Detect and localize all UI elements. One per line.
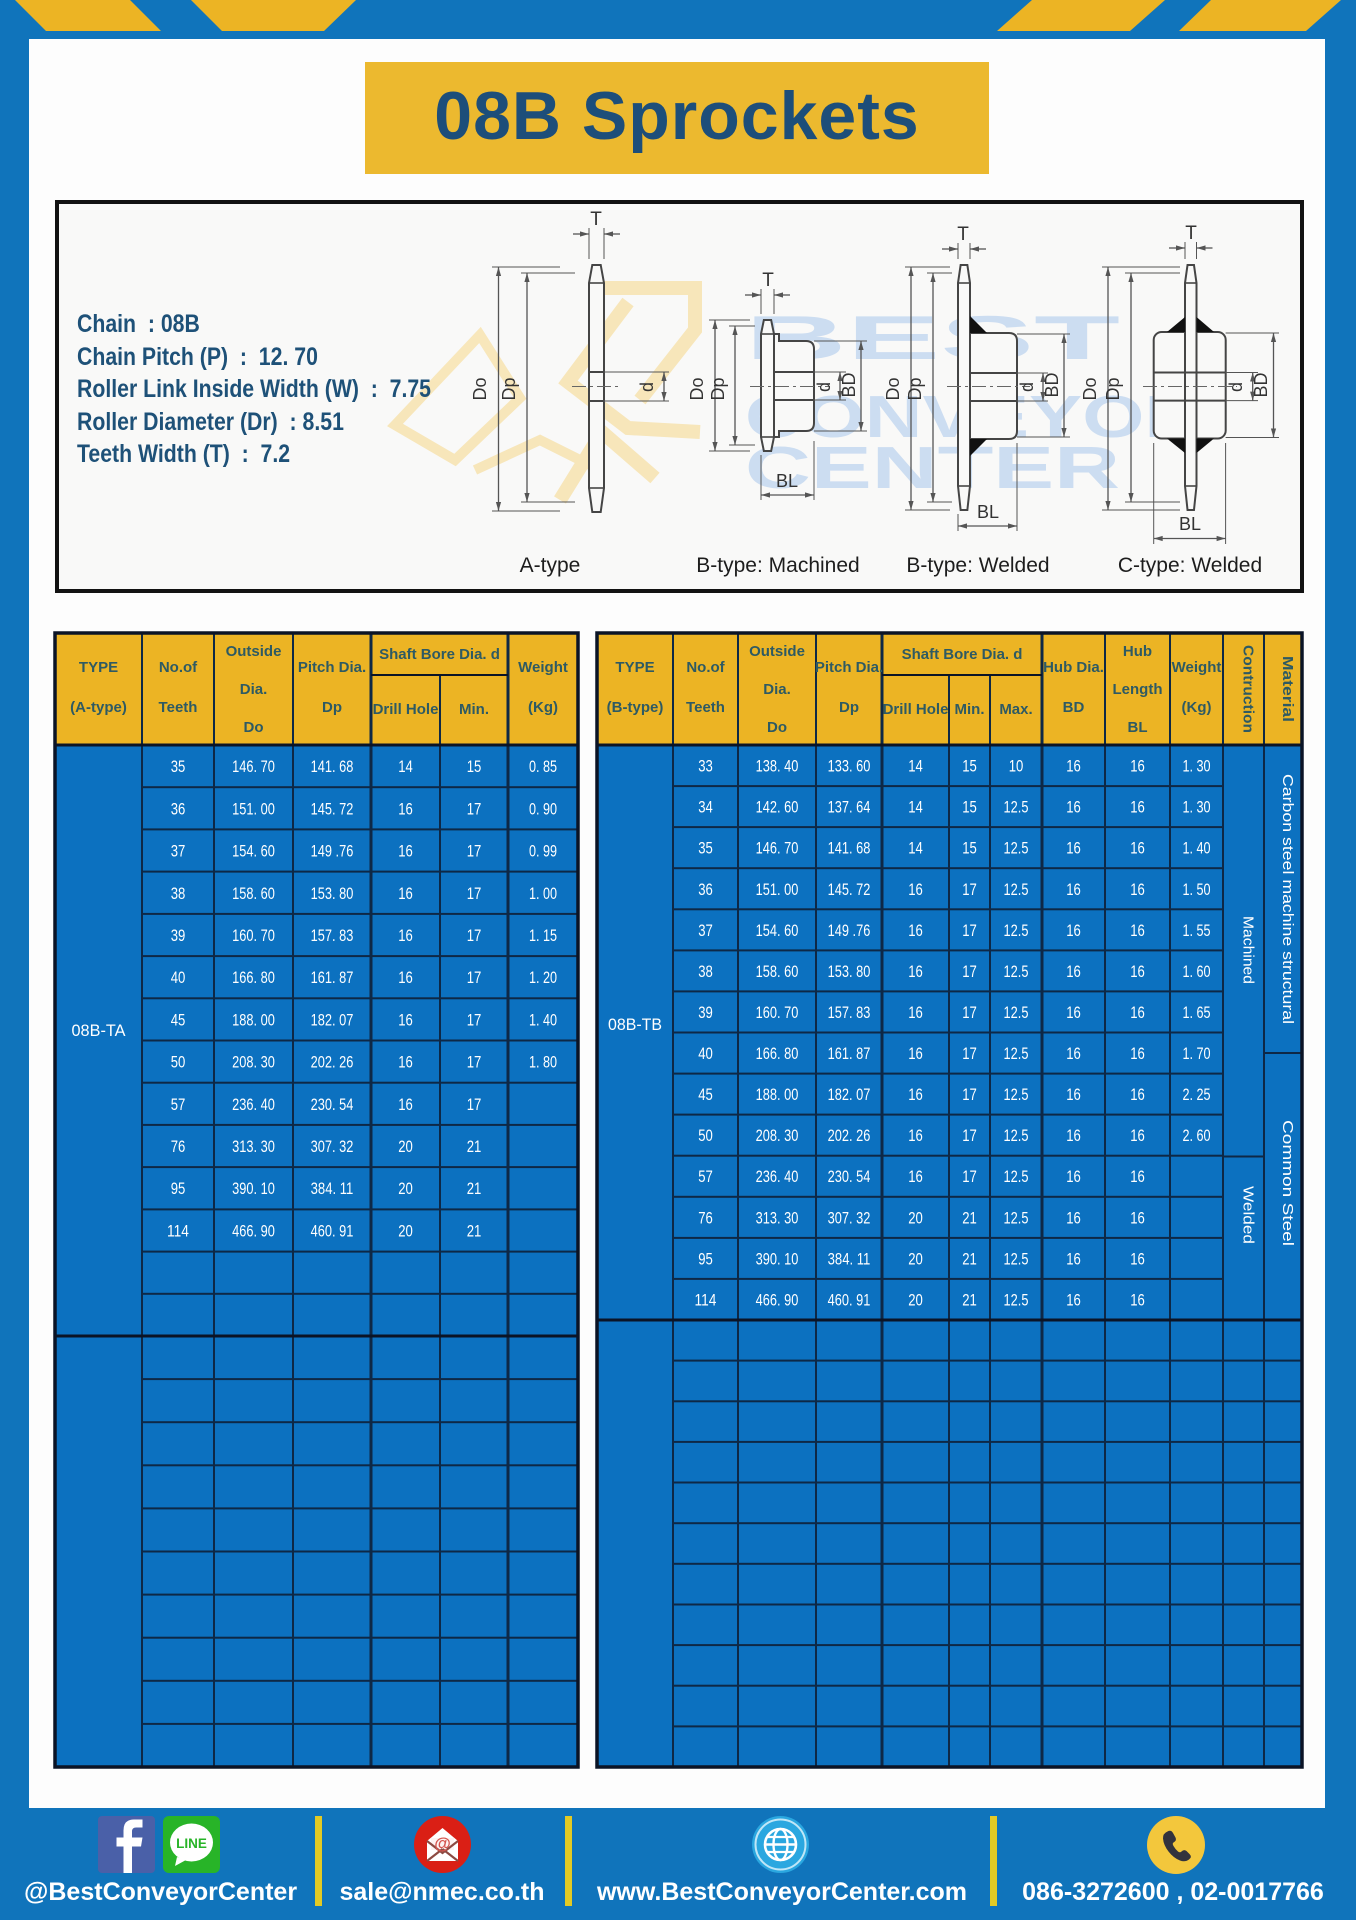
svg-text:No.of: No.of [159, 659, 198, 676]
svg-text:145. 72: 145. 72 [311, 799, 354, 818]
svg-text:16: 16 [1066, 962, 1081, 981]
svg-text:2. 60: 2. 60 [1182, 1126, 1210, 1145]
svg-text:No.of: No.of [686, 659, 725, 676]
svg-text:1. 30: 1. 30 [1182, 798, 1210, 817]
svg-text:Weight: Weight [518, 659, 568, 676]
svg-text:37: 37 [171, 842, 186, 861]
svg-text:149 .76: 149 .76 [828, 921, 871, 940]
svg-text:15: 15 [962, 839, 977, 858]
svg-text:Teeth: Teeth [686, 699, 725, 716]
svg-text:20: 20 [908, 1291, 923, 1310]
svg-text:45: 45 [698, 1085, 713, 1104]
svg-text:307. 32: 307. 32 [311, 1137, 354, 1156]
svg-text:466. 90: 466. 90 [232, 1222, 275, 1241]
svg-text:12.5: 12.5 [1004, 921, 1029, 940]
svg-text:0. 99: 0. 99 [529, 842, 557, 861]
svg-text:(A-type): (A-type) [70, 699, 127, 716]
svg-text:08B-TB: 08B-TB [608, 1015, 662, 1034]
svg-text:16: 16 [1130, 1044, 1145, 1063]
svg-text:466. 90: 466. 90 [756, 1291, 799, 1310]
svg-text:16: 16 [1130, 962, 1145, 981]
svg-text:16: 16 [1066, 798, 1081, 817]
svg-text:40: 40 [698, 1044, 713, 1063]
svg-text:16: 16 [1130, 1208, 1145, 1227]
svg-text:14: 14 [908, 839, 923, 858]
svg-text:15: 15 [467, 757, 482, 776]
svg-text:50: 50 [698, 1126, 713, 1145]
svg-text:188. 00: 188. 00 [756, 1085, 799, 1104]
svg-text:Pitch Dia.: Pitch Dia. [298, 659, 366, 676]
svg-text:10: 10 [1009, 757, 1024, 776]
svg-text:39: 39 [698, 1003, 713, 1022]
svg-text:95: 95 [698, 1249, 713, 1268]
svg-text:Dia.: Dia. [763, 681, 791, 698]
svg-text:21: 21 [962, 1291, 977, 1310]
svg-text:20: 20 [908, 1208, 923, 1227]
svg-text:390. 10: 390. 10 [232, 1179, 275, 1198]
svg-text:1. 00: 1. 00 [529, 884, 557, 903]
svg-text:16: 16 [1066, 1249, 1081, 1268]
svg-text:17: 17 [962, 1003, 977, 1022]
svg-text:153. 80: 153. 80 [311, 884, 354, 903]
svg-text:34: 34 [698, 798, 713, 817]
svg-text:236. 40: 236. 40 [756, 1167, 799, 1186]
svg-text:12.5: 12.5 [1004, 798, 1029, 817]
svg-text:160. 70: 160. 70 [232, 926, 275, 945]
svg-text:1. 65: 1. 65 [1182, 1003, 1210, 1022]
svg-text:1. 40: 1. 40 [1182, 839, 1210, 858]
svg-text:20: 20 [908, 1249, 923, 1268]
svg-text:12.5: 12.5 [1004, 1249, 1029, 1268]
svg-text:33: 33 [698, 757, 713, 776]
svg-text:BL: BL [1128, 719, 1148, 736]
svg-text:0. 85: 0. 85 [529, 757, 557, 776]
svg-text:21: 21 [467, 1137, 482, 1156]
svg-text:Outside: Outside [749, 643, 805, 660]
svg-text:17: 17 [467, 1010, 482, 1029]
svg-text:16: 16 [398, 884, 413, 903]
svg-text:Min.: Min. [459, 701, 489, 718]
svg-text:2. 25: 2. 25 [1182, 1085, 1210, 1104]
svg-text:182. 07: 182. 07 [311, 1010, 354, 1029]
svg-text:16: 16 [908, 921, 923, 940]
svg-text:16: 16 [1066, 839, 1081, 858]
svg-text:21: 21 [962, 1249, 977, 1268]
svg-text:16: 16 [908, 962, 923, 981]
svg-text:@: @ [434, 1834, 451, 1853]
svg-text:Machined: Machined [1240, 916, 1257, 984]
svg-text:1. 50: 1. 50 [1182, 880, 1210, 899]
svg-text:1. 55: 1. 55 [1182, 921, 1210, 940]
svg-text:17: 17 [962, 1126, 977, 1145]
svg-text:TYPE: TYPE [79, 659, 118, 676]
svg-text:158. 60: 158. 60 [232, 884, 275, 903]
svg-text:(B-type): (B-type) [607, 699, 664, 716]
svg-text:137. 64: 137. 64 [828, 798, 871, 817]
svg-text:16: 16 [398, 1053, 413, 1072]
svg-text:21: 21 [467, 1179, 482, 1198]
svg-text:17: 17 [467, 842, 482, 861]
svg-text:16: 16 [1066, 880, 1081, 899]
svg-text:76: 76 [698, 1208, 713, 1227]
svg-text:17: 17 [962, 1167, 977, 1186]
svg-text:Hub: Hub [1123, 643, 1152, 660]
svg-text:141. 68: 141. 68 [828, 839, 871, 858]
svg-text:Drill Hole: Drill Hole [373, 701, 439, 718]
svg-text:16: 16 [398, 799, 413, 818]
svg-text:16: 16 [1066, 757, 1081, 776]
svg-text:17: 17 [962, 1085, 977, 1104]
svg-text:384. 11: 384. 11 [828, 1249, 871, 1268]
svg-text:16: 16 [1130, 1167, 1145, 1186]
svg-text:12.5: 12.5 [1004, 1208, 1029, 1227]
svg-text:16: 16 [908, 1126, 923, 1145]
svg-text:57: 57 [698, 1167, 713, 1186]
svg-text:Weight: Weight [1172, 659, 1222, 676]
svg-text:Dia.: Dia. [240, 681, 268, 698]
svg-text:1. 15: 1. 15 [529, 926, 557, 945]
svg-text:142. 60: 142. 60 [756, 798, 799, 817]
svg-text:236. 40: 236. 40 [232, 1095, 275, 1114]
svg-text:16: 16 [1130, 921, 1145, 940]
svg-text:16: 16 [908, 1003, 923, 1022]
svg-text:15: 15 [962, 798, 977, 817]
svg-text:157. 83: 157. 83 [311, 926, 354, 945]
svg-text:460. 91: 460. 91 [828, 1291, 871, 1310]
svg-text:208. 30: 208. 30 [756, 1126, 799, 1145]
svg-text:Drill Hole: Drill Hole [883, 701, 949, 718]
svg-text:16: 16 [1130, 1249, 1145, 1268]
svg-text:38: 38 [698, 962, 713, 981]
svg-text:39: 39 [171, 926, 186, 945]
svg-text:16: 16 [1130, 798, 1145, 817]
svg-text:(Kg): (Kg) [528, 699, 558, 716]
svg-text:16: 16 [1066, 1208, 1081, 1227]
svg-text:166. 80: 166. 80 [232, 968, 275, 987]
svg-text:1. 80: 1. 80 [529, 1053, 557, 1072]
svg-text:17: 17 [962, 880, 977, 899]
svg-text:1. 40: 1. 40 [529, 1010, 557, 1029]
svg-text:313. 30: 313. 30 [232, 1137, 275, 1156]
svg-text:21: 21 [467, 1222, 482, 1241]
svg-text:313. 30: 313. 30 [756, 1208, 799, 1227]
svg-text:Shaft Bore Dia. d: Shaft Bore Dia. d [902, 646, 1023, 663]
svg-text:12.5: 12.5 [1004, 1003, 1029, 1022]
svg-text:1. 70: 1. 70 [1182, 1044, 1210, 1063]
svg-text:Contruction: Contruction [1240, 645, 1257, 733]
svg-text:133. 60: 133. 60 [828, 757, 871, 776]
svg-text:17: 17 [467, 1095, 482, 1114]
svg-text:16: 16 [1130, 1126, 1145, 1145]
svg-text:76: 76 [171, 1137, 186, 1156]
svg-text:Material: Material [1279, 656, 1296, 722]
svg-text:16: 16 [908, 1044, 923, 1063]
svg-text:20: 20 [398, 1179, 413, 1198]
svg-text:141. 68: 141. 68 [311, 757, 354, 776]
svg-text:36: 36 [171, 799, 186, 818]
svg-text:45: 45 [171, 1010, 186, 1029]
svg-text:384. 11: 384. 11 [311, 1179, 354, 1198]
svg-text:36: 36 [698, 880, 713, 899]
svg-text:Length: Length [1113, 681, 1163, 698]
svg-text:12.5: 12.5 [1004, 1167, 1029, 1186]
svg-text:161. 87: 161. 87 [828, 1044, 871, 1063]
svg-text:16: 16 [1066, 1167, 1081, 1186]
svg-text:(Kg): (Kg) [1182, 699, 1212, 716]
svg-text:17: 17 [962, 1044, 977, 1063]
svg-text:160. 70: 160. 70 [756, 1003, 799, 1022]
svg-text:154. 60: 154. 60 [232, 842, 275, 861]
svg-text:17: 17 [467, 884, 482, 903]
svg-text:17: 17 [467, 926, 482, 945]
svg-text:Welded: Welded [1240, 1186, 1257, 1244]
svg-text:16: 16 [1130, 880, 1145, 899]
svg-text:Carbon steel machine structur: Carbon steel machine structural [1279, 774, 1296, 1024]
svg-text:TYPE: TYPE [615, 659, 654, 676]
svg-text:153. 80: 153. 80 [828, 962, 871, 981]
svg-text:12.5: 12.5 [1004, 962, 1029, 981]
svg-text:16: 16 [1066, 921, 1081, 940]
svg-text:16: 16 [1130, 1003, 1145, 1022]
svg-text:BD: BD [1063, 699, 1085, 716]
svg-text:12.5: 12.5 [1004, 1085, 1029, 1104]
svg-text:145. 72: 145. 72 [828, 880, 871, 899]
svg-text:146. 70: 146. 70 [756, 839, 799, 858]
svg-text:16: 16 [1130, 1085, 1145, 1104]
svg-text:1. 60: 1. 60 [1182, 962, 1210, 981]
svg-text:35: 35 [171, 757, 186, 776]
svg-text:146. 70: 146. 70 [232, 757, 275, 776]
svg-text:307. 32: 307. 32 [828, 1208, 871, 1227]
svg-text:14: 14 [398, 757, 413, 776]
svg-text:16: 16 [1066, 1003, 1081, 1022]
svg-text:114: 114 [167, 1222, 189, 1241]
svg-text:12.5: 12.5 [1004, 1291, 1029, 1310]
svg-text:Max.: Max. [999, 701, 1032, 718]
svg-text:21: 21 [962, 1208, 977, 1227]
svg-text:208. 30: 208. 30 [232, 1053, 275, 1072]
svg-text:16: 16 [1066, 1044, 1081, 1063]
svg-text:17: 17 [962, 962, 977, 981]
svg-text:460. 91: 460. 91 [311, 1222, 354, 1241]
svg-text:14: 14 [908, 798, 923, 817]
svg-text:157. 83: 157. 83 [828, 1003, 871, 1022]
svg-text:16: 16 [1066, 1085, 1081, 1104]
svg-text:Teeth: Teeth [159, 699, 198, 716]
svg-text:LINE: LINE [176, 1836, 207, 1851]
svg-text:16: 16 [398, 842, 413, 861]
svg-text:1. 30: 1. 30 [1182, 757, 1210, 776]
svg-text:154. 60: 154. 60 [756, 921, 799, 940]
svg-text:40: 40 [171, 968, 186, 987]
svg-text:Do: Do [244, 719, 264, 736]
svg-text:0. 90: 0. 90 [529, 799, 557, 818]
svg-text:114: 114 [695, 1291, 717, 1310]
svg-text:16: 16 [1130, 839, 1145, 858]
svg-text:16: 16 [398, 968, 413, 987]
svg-text:20: 20 [398, 1137, 413, 1156]
svg-text:Hub Dia.: Hub Dia. [1043, 659, 1104, 676]
svg-text:182. 07: 182. 07 [828, 1085, 871, 1104]
svg-text:14: 14 [908, 757, 923, 776]
svg-text:202. 26: 202. 26 [828, 1126, 871, 1145]
svg-text:188. 00: 188. 00 [232, 1010, 275, 1029]
svg-text:230. 54: 230. 54 [828, 1167, 871, 1186]
svg-text:151. 00: 151. 00 [232, 799, 275, 818]
svg-text:08B-TA: 08B-TA [72, 1021, 127, 1040]
svg-text:12.5: 12.5 [1004, 839, 1029, 858]
svg-text:16: 16 [908, 1085, 923, 1104]
svg-text:16: 16 [398, 1095, 413, 1114]
svg-text:35: 35 [698, 839, 713, 858]
svg-text:95: 95 [171, 1179, 186, 1198]
svg-text:16: 16 [398, 1010, 413, 1029]
svg-text:17: 17 [467, 799, 482, 818]
svg-text:Outside: Outside [226, 643, 282, 660]
svg-text:16: 16 [1066, 1126, 1081, 1145]
svg-text:149 .76: 149 .76 [311, 842, 354, 861]
svg-text:16: 16 [398, 926, 413, 945]
svg-text:12.5: 12.5 [1004, 880, 1029, 899]
svg-text:17: 17 [962, 921, 977, 940]
svg-text:16: 16 [908, 1167, 923, 1186]
svg-text:38: 38 [171, 884, 186, 903]
svg-text:230. 54: 230. 54 [311, 1095, 354, 1114]
svg-text:57: 57 [171, 1095, 186, 1114]
svg-text:12.5: 12.5 [1004, 1126, 1029, 1145]
svg-text:17: 17 [467, 1053, 482, 1072]
svg-text:16: 16 [1130, 1291, 1145, 1310]
svg-text:166. 80: 166. 80 [756, 1044, 799, 1063]
svg-text:Dp: Dp [322, 699, 342, 716]
svg-text:37: 37 [698, 921, 713, 940]
svg-text:Min.: Min. [955, 701, 985, 718]
svg-text:138. 40: 138. 40 [756, 757, 799, 776]
svg-text:Pitch Dia.: Pitch Dia. [815, 659, 883, 676]
svg-text:Do: Do [767, 719, 787, 736]
svg-text:15: 15 [962, 757, 977, 776]
svg-text:161. 87: 161. 87 [311, 968, 354, 987]
svg-text:20: 20 [398, 1222, 413, 1241]
svg-text:1. 20: 1. 20 [529, 968, 557, 987]
svg-text:Shaft Bore Dia. d: Shaft Bore Dia. d [379, 646, 500, 663]
svg-text:202. 26: 202. 26 [311, 1053, 354, 1072]
svg-text:Common Steel: Common Steel [1279, 1120, 1296, 1246]
svg-text:Dp: Dp [839, 699, 859, 716]
svg-text:16: 16 [1130, 757, 1145, 776]
svg-text:12.5: 12.5 [1004, 1044, 1029, 1063]
svg-text:50: 50 [171, 1053, 186, 1072]
svg-text:16: 16 [1066, 1291, 1081, 1310]
svg-text:16: 16 [908, 880, 923, 899]
svg-text:17: 17 [467, 968, 482, 987]
svg-text:390. 10: 390. 10 [756, 1249, 799, 1268]
svg-text:151. 00: 151. 00 [756, 880, 799, 899]
svg-text:158. 60: 158. 60 [756, 962, 799, 981]
